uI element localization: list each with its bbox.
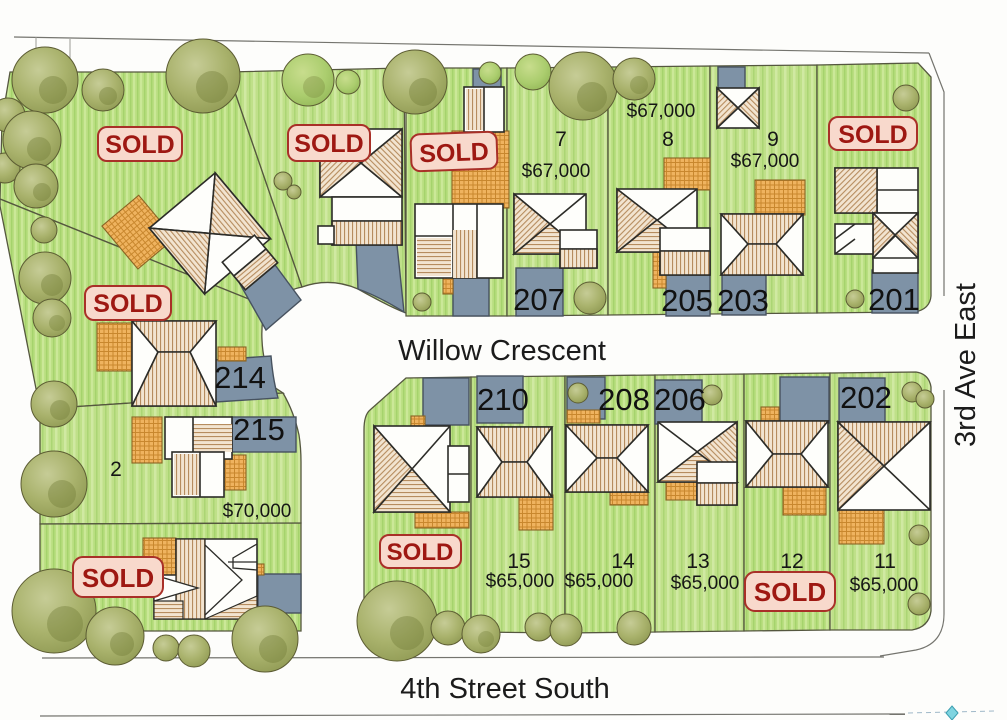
svg-text:3rd Ave East: 3rd Ave East [950,283,982,447]
svg-text:$65,000: $65,000 [565,571,634,592]
svg-text:SOLD: SOLD [294,130,363,158]
svg-text:$65,000: $65,000 [850,575,919,596]
svg-text:214: 214 [214,360,266,395]
svg-text:SOLD: SOLD [93,290,162,318]
svg-text:9: 9 [767,128,779,151]
svg-text:SOLD: SOLD [419,138,489,168]
svg-text:206: 206 [654,382,706,417]
svg-text:$67,000: $67,000 [522,161,591,182]
svg-text:SOLD: SOLD [387,539,454,566]
svg-text:$65,000: $65,000 [671,573,740,594]
svg-text:2: 2 [110,458,122,481]
svg-text:4th Street South: 4th Street South [400,673,610,705]
svg-text:SOLD: SOLD [105,131,174,159]
svg-text:SOLD: SOLD [82,563,154,593]
svg-text:$70,000: $70,000 [223,501,292,522]
svg-text:8: 8 [662,128,674,151]
svg-text:205: 205 [661,283,713,318]
svg-text:215: 215 [233,412,285,447]
svg-text:SOLD: SOLD [754,577,826,607]
svg-text:15: 15 [507,550,530,573]
svg-text:14: 14 [611,550,635,573]
svg-text:208: 208 [598,382,650,417]
svg-text:$67,000: $67,000 [627,101,696,122]
svg-text:7: 7 [555,128,567,151]
svg-text:Willow Crescent: Willow Crescent [398,335,606,367]
svg-text:$65,000: $65,000 [486,571,555,592]
svg-text:11: 11 [874,550,896,573]
svg-text:13: 13 [686,550,709,573]
svg-text:$67,000: $67,000 [731,151,800,172]
svg-text:210: 210 [477,382,529,417]
svg-text:201: 201 [868,282,920,317]
svg-text:202: 202 [840,380,892,415]
svg-text:203: 203 [717,283,769,318]
svg-text:207: 207 [513,282,565,317]
svg-text:SOLD: SOLD [838,121,907,149]
svg-text:12: 12 [780,550,803,573]
